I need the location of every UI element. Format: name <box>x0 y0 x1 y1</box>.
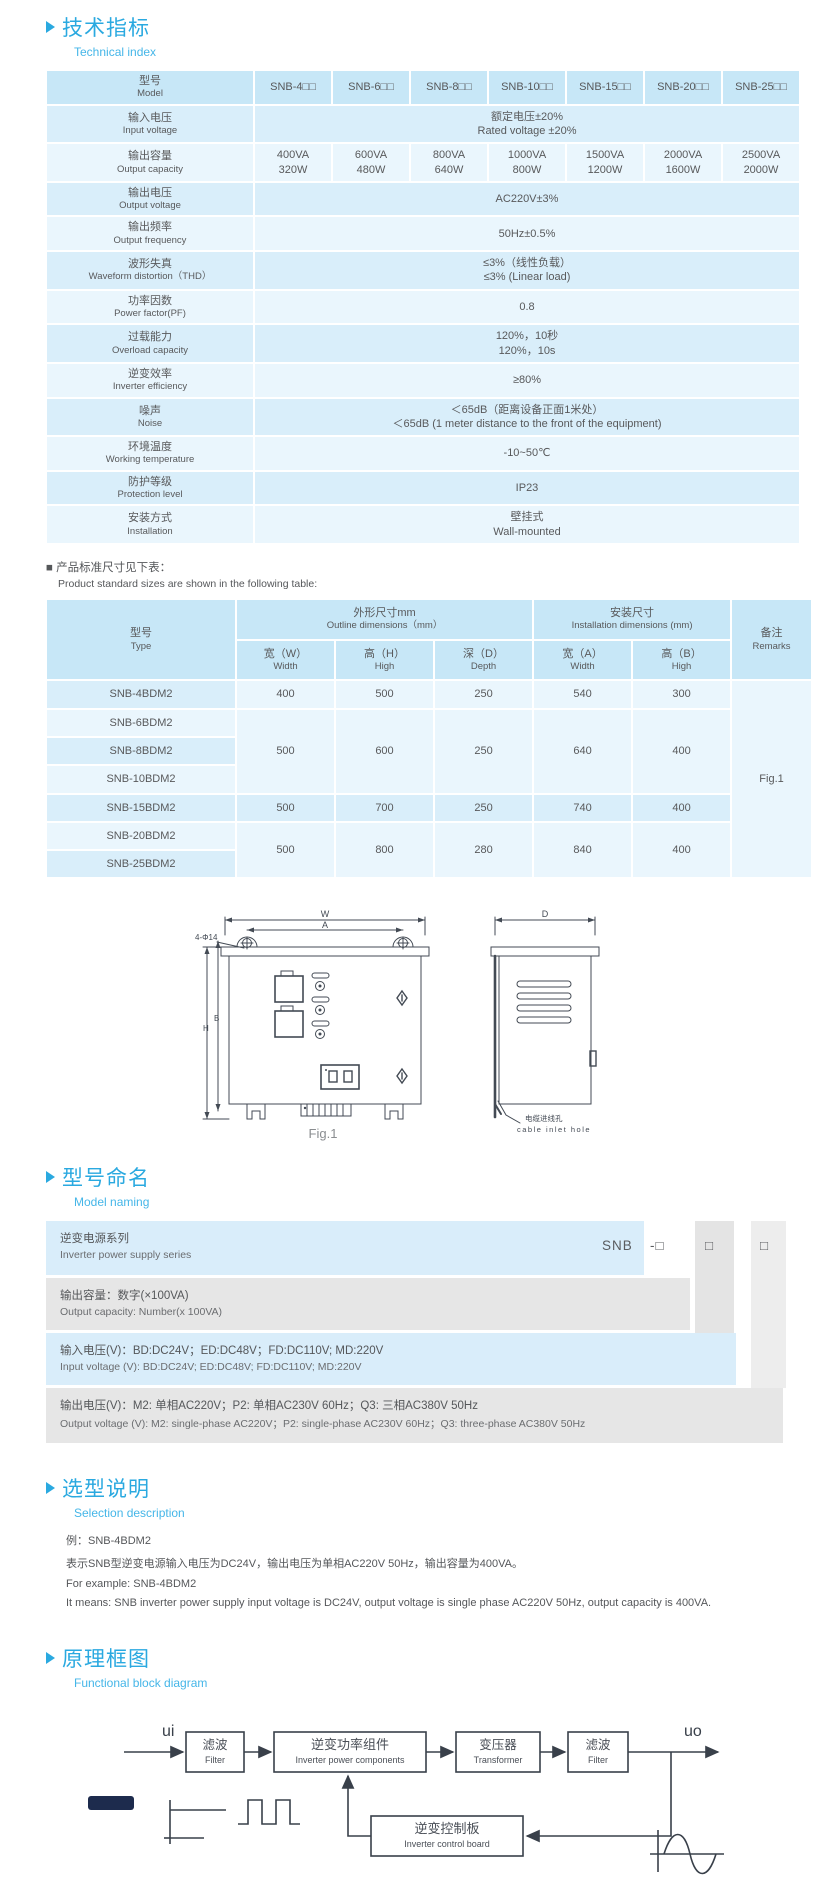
spec-row-input-voltage: 输入电压Input voltage 额定电压±20%Rated voltage … <box>47 106 799 143</box>
spec-model-col: SNB-8□□ <box>411 71 487 104</box>
spec-model-col: SNB-4□□ <box>255 71 331 104</box>
selection-example-zh: 例：SNB-4BDM2 <box>66 1532 830 1548</box>
sizes-table: 型号Type 外形尺寸mmOutline dimensions（mm） 安装尺寸… <box>45 598 813 879</box>
section-title: 型号命名 <box>62 1162 150 1192</box>
section-title: 选型说明 <box>62 1473 150 1503</box>
cabinet-drawing: W A 4-Φ14 H B Fig.1 D 电缆进线 <box>195 905 645 1143</box>
section-subtitle: Selection description <box>74 1506 830 1520</box>
section-subtitle: Model naming <box>74 1195 830 1209</box>
section-arrow-icon <box>46 1171 55 1183</box>
block-diagram-section-heading: 原理框图 Functional block diagram <box>46 1643 830 1690</box>
selection-example-en: For example: SNB-4BDM2 <box>66 1578 830 1590</box>
selection-section-heading: 选型说明 Selection description <box>46 1473 830 1520</box>
model-code-snb: SNB <box>602 1238 633 1253</box>
section-title: 原理框图 <box>62 1643 150 1673</box>
model-code-output: □ <box>760 1238 769 1253</box>
spec-table: 型号 Model SNB-4□□ SNB-6□□ SNB-8□□ SNB-10□… <box>45 69 801 545</box>
sizes-header-outline: 外形尺寸mmOutline dimensions（mm） <box>237 600 532 639</box>
block-filter2-zh: 滤波 <box>585 1738 611 1752</box>
block-control-zh: 逆变控制板 <box>414 1821 479 1836</box>
spec-row-overload: 过载能力Overload capacity 120%，10秒120%，10s <box>47 325 799 362</box>
naming-row-input-voltage: 输入电压(V)：BD:DC24V；ED:DC48V；FD:DC110V; MD:… <box>46 1333 736 1385</box>
technical-index-section-heading: 技术指标 Technical index <box>46 0 830 59</box>
section-arrow-icon <box>46 1652 55 1664</box>
model-naming-section-heading: 型号命名 Model naming <box>46 1162 830 1209</box>
sizes-remark: Fig.1 <box>732 681 811 877</box>
spec-row-output-frequency: 输出频率Output frequency 50Hz±0.5% <box>47 217 799 250</box>
naming-row-series: 逆变电源系列 Inverter power supply series <box>46 1221 644 1275</box>
model-code-input: □ <box>705 1238 714 1253</box>
dim-b-label: B <box>214 1014 219 1023</box>
spec-row-thd: 波形失真Waveform distortion（THD） ≤3%（线性负载）≤3… <box>47 252 799 289</box>
section-arrow-icon <box>46 21 55 33</box>
naming-row-capacity: 输出容量：数字(×100VA) Output capacity: Number(… <box>46 1278 690 1330</box>
naming-row-output-voltage: 输出电压(V)：M2: 单相AC220V；P2: 单相AC230V 60Hz；Q… <box>46 1388 783 1443</box>
block-control-en: Inverter control board <box>404 1839 490 1849</box>
block-inverter-en: Inverter power components <box>295 1755 405 1765</box>
sizes-header-row1: 型号Type 外形尺寸mmOutline dimensions（mm） 安装尺寸… <box>47 600 811 639</box>
dim-h-label: H <box>203 1024 209 1033</box>
block-filter1-zh: 滤波 <box>202 1738 228 1752</box>
spec-row-power-factor: 功率因数Power factor(PF) 0.8 <box>47 291 799 324</box>
spec-model-col: SNB-25□□ <box>723 71 799 104</box>
sizes-row: SNB-6BDM2 500 600 250 640 400 <box>47 710 811 736</box>
dimension-figure: W A 4-Φ14 H B Fig.1 D 电缆进线 <box>195 905 830 1148</box>
sizes-header-remarks: 备注Remarks <box>732 600 811 679</box>
spec-row-efficiency: 逆变效率Inverter efficiency ≥80% <box>47 364 799 397</box>
sizes-header-install: 安装尺寸Installation dimensions (mm) <box>534 600 730 639</box>
spec-row-output-capacity: 输出容量Output capacity 400VA320W 600VA480W … <box>47 144 799 181</box>
spec-row-temperature: 环境温度Working temperature -10~50℃ <box>47 437 799 470</box>
spec-model-col: SNB-10□□ <box>489 71 565 104</box>
dim-w-label: W <box>321 909 330 919</box>
square-wave-icon <box>238 1800 300 1824</box>
spec-header-model: 型号 Model <box>47 71 253 104</box>
spec-row-installation: 安装方式Installation 壁挂式Wall-mounted <box>47 506 799 543</box>
section-arrow-icon <box>46 1482 55 1494</box>
functional-block-diagram: ui 滤波 Filter 逆变功率组件 Inverter power compo… <box>86 1704 830 1895</box>
block-inverter-zh: 逆变功率组件 <box>311 1737 389 1752</box>
spec-model-col: SNB-20□□ <box>645 71 721 104</box>
sizes-row: SNB-4BDM2 400 500 250 540 300 Fig.1 <box>47 681 811 707</box>
dc-signal-icon <box>164 1800 226 1844</box>
spec-row-protection: 防护等级Protection level IP23 <box>47 472 799 505</box>
selection-description: 例：SNB-4BDM2 表示SNB型逆变电源输入电压为DC24V，输出电压为单相… <box>66 1532 830 1609</box>
selection-desc-en: It means: SNB inverter power supply inpu… <box>66 1597 830 1609</box>
spec-header-row: 型号 Model SNB-4□□ SNB-6□□ SNB-8□□ SNB-10□… <box>47 71 799 104</box>
cable-note-en: cable inlet hole <box>517 1125 591 1134</box>
block-filter1-en: Filter <box>205 1755 225 1765</box>
diagram-input-label: ui <box>162 1723 174 1740</box>
section-title-row: 技术指标 <box>46 12 830 42</box>
sizes-note: ■ 产品标准尺寸见下表： Product standard sizes are … <box>46 559 830 590</box>
diagram-output-label: uo <box>684 1723 702 1740</box>
block-transformer-zh: 变压器 <box>479 1737 517 1752</box>
spec-model-col: SNB-6□□ <box>333 71 409 104</box>
model-code-capacity: -□ <box>650 1238 665 1253</box>
section-subtitle: Functional block diagram <box>74 1676 830 1690</box>
dim-a-label: A <box>322 920 328 930</box>
sizes-row: SNB-20BDM2 500 800 280 840 400 <box>47 823 811 849</box>
block-filter2-en: Filter <box>588 1755 608 1765</box>
section-subtitle: Technical index <box>74 45 830 59</box>
selection-desc-zh: 表示SNB型逆变电源输入电压为DC24V，输出电压为单相AC220V 50Hz，… <box>66 1555 830 1571</box>
spec-row-noise: 噪声Noise ＜65dB（距离设备正面1米处）＜65dB (1 meter d… <box>47 399 799 436</box>
spec-model-col: SNB-15□□ <box>567 71 643 104</box>
block-transformer-en: Transformer <box>474 1755 523 1765</box>
model-naming-diagram: 逆变电源系列 Inverter power supply series 输出容量… <box>46 1221 802 1443</box>
cable-note-zh: 电缆进线孔 <box>525 1113 563 1123</box>
dim-d-label: D <box>542 909 549 919</box>
block-diagram-svg: ui 滤波 Filter 逆变功率组件 Inverter power compo… <box>86 1704 730 1890</box>
naming-strip-input <box>695 1221 734 1333</box>
sizes-row: SNB-15BDM2 500 700 250 740 400 <box>47 795 811 821</box>
figure-caption: Fig.1 <box>309 1126 338 1141</box>
section-title: 技术指标 <box>62 12 150 42</box>
hole-note: 4-Φ14 <box>195 933 218 942</box>
sizes-header-type: 型号Type <box>47 600 235 679</box>
spec-row-output-voltage: 输出电压Output voltage AC220V±3% <box>47 183 799 216</box>
